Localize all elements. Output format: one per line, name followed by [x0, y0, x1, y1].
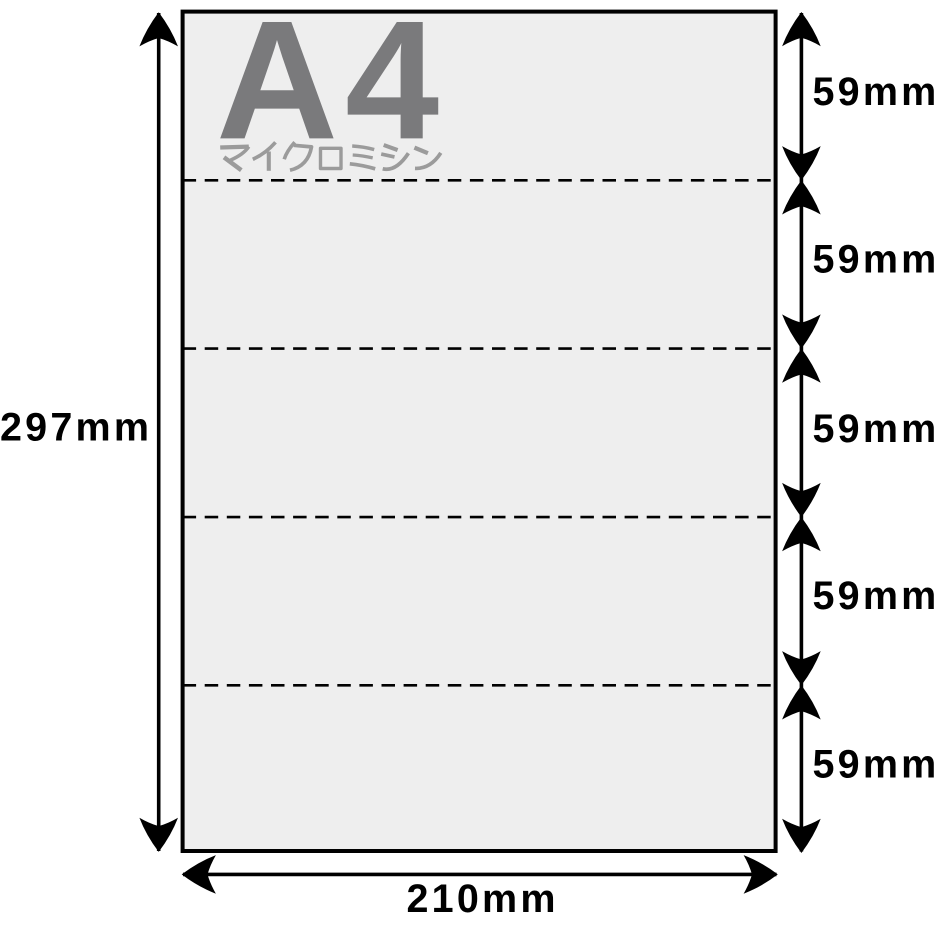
svg-text:59mm: 59mm — [813, 743, 936, 787]
svg-text:59mm: 59mm — [813, 70, 936, 114]
svg-text:59mm: 59mm — [813, 238, 936, 282]
svg-text:59mm: 59mm — [813, 407, 936, 451]
svg-text:59mm: 59mm — [813, 574, 936, 618]
svg-text:297mm: 297mm — [0, 406, 152, 450]
svg-text:210mm: 210mm — [407, 877, 559, 921]
